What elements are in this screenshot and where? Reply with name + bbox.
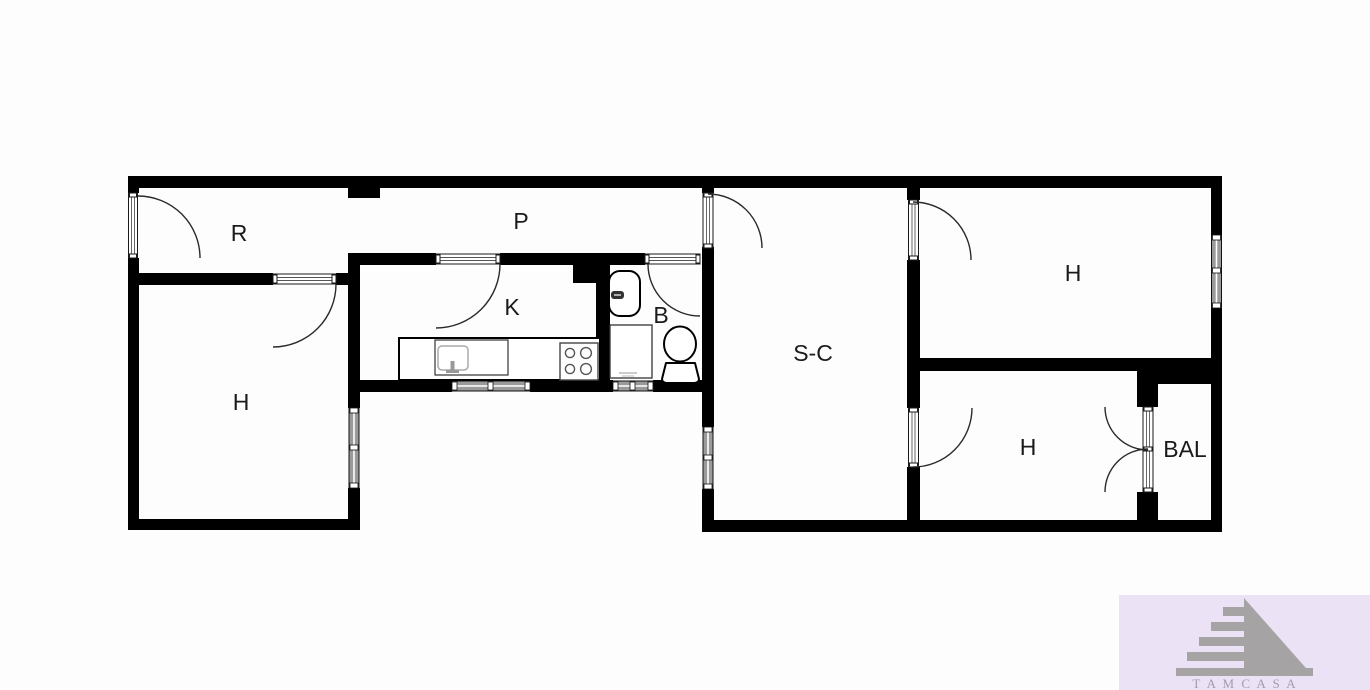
wall-right-lower — [1211, 308, 1222, 532]
room-label-h-bottom-right: H — [1020, 434, 1037, 460]
room-label-k: K — [504, 294, 520, 320]
door-leaf-bedroom-bottom-right — [909, 408, 919, 467]
wall-mid-vert-lower — [348, 488, 360, 530]
room-label-h-left: H — [233, 389, 250, 415]
wall-hh-divider — [907, 358, 1222, 371]
wall-sc-right-mid — [907, 260, 920, 408]
wall-left-lower — [128, 258, 139, 530]
window-bedroom-left — [349, 408, 359, 488]
floorplan-canvas: R P K B S-C H H H BAL T A M C A S A — [0, 0, 1370, 690]
wall-kitchen-bottom-a — [348, 380, 452, 392]
wall-left-upper — [128, 176, 139, 193]
wall-sc-left-mid — [702, 247, 714, 427]
window-living-room — [703, 427, 713, 489]
wall-sc-right-lower — [907, 467, 920, 530]
window-bathroom — [613, 381, 653, 391]
room-label-r: R — [231, 220, 248, 246]
room-label-p: P — [513, 208, 528, 234]
room-label-b: B — [653, 302, 668, 328]
door-leaf-entry — [129, 193, 138, 258]
wall-sc-left-lower — [702, 489, 714, 532]
kitchen-faucet-base-icon — [446, 370, 459, 373]
brand-name: T A M C A S A — [1192, 676, 1297, 690]
wall-bal-pillar-top — [1137, 371, 1158, 407]
toilet-icon — [662, 327, 699, 384]
wall-sc-right-stub — [907, 176, 920, 200]
room-label-h-top-right: H — [1065, 260, 1082, 286]
wall-top — [128, 176, 1222, 188]
room-label-sc: S-C — [793, 340, 833, 366]
wall-bottom-left — [128, 519, 360, 530]
shower-tray-icon — [610, 325, 652, 378]
door-leaf-bedroom-left — [273, 274, 336, 284]
watermark: T A M C A S A — [1119, 595, 1370, 690]
wall-kitchen-top-a — [348, 253, 436, 265]
wall-right-upper — [1211, 176, 1222, 235]
wall-kitchen-top-b — [500, 253, 645, 265]
wall-r-h — [128, 273, 273, 285]
wall-kb-notch — [573, 253, 610, 283]
door-leaf-bathroom — [645, 254, 700, 264]
room-label-bal: BAL — [1163, 436, 1207, 462]
wall-bal-pillar-bottom — [1137, 492, 1158, 523]
floorplan-svg: R P K B S-C H H H BAL T A M C A S A — [0, 0, 1370, 690]
wall-kitchen-bottom-b — [530, 380, 613, 392]
kitchen-fixtures — [399, 338, 600, 380]
wall-r-h-stub — [336, 273, 348, 285]
door-leaf-living-room — [703, 193, 713, 248]
wall-sc-left-stub — [702, 176, 714, 193]
window-kitchen — [452, 381, 530, 391]
wall-bal-top — [1158, 371, 1211, 384]
door-leaf-bedroom-top-right — [909, 200, 919, 260]
window-bedroom-top-right — [1212, 235, 1222, 308]
wall-pillar-top — [348, 188, 380, 198]
stove-icon — [560, 343, 598, 380]
door-leaf-kitchen — [436, 254, 500, 264]
